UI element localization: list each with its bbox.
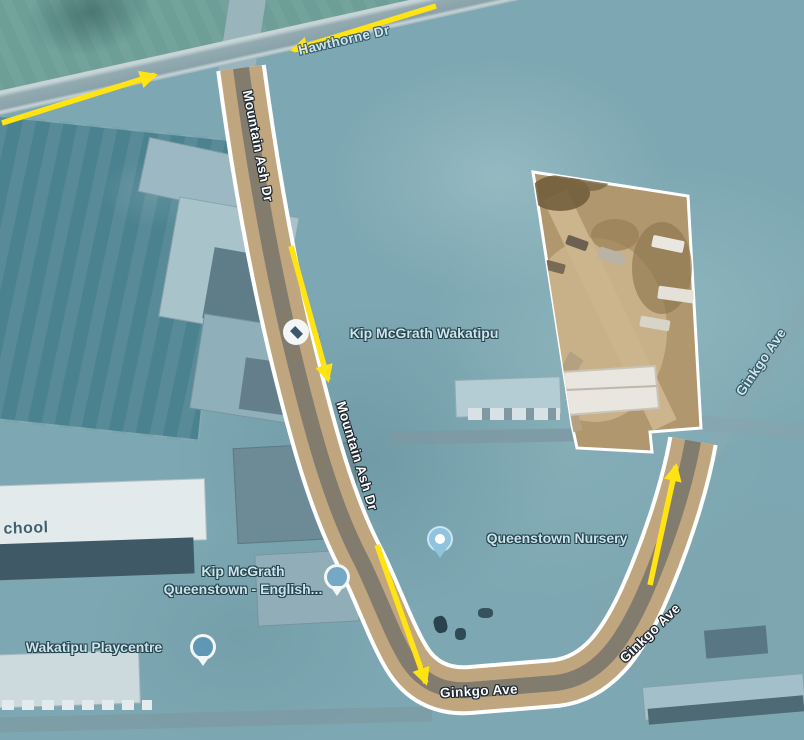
pin-tail xyxy=(433,548,447,558)
route-overlay xyxy=(0,0,804,740)
nursery-pin-icon[interactable] xyxy=(427,526,453,552)
pin-inner xyxy=(435,534,445,544)
poi-label-line: Queenstown - English... xyxy=(164,580,323,598)
poi-label-kip-mcgrath-wakatipu[interactable]: Kip McGrath Wakatipu xyxy=(350,324,499,342)
highlighted-property-parcel[interactable] xyxy=(523,167,701,452)
pin-inner xyxy=(327,567,347,587)
route-arrow-hawthorne-west-arrow xyxy=(2,75,155,123)
education-pin-icon[interactable] xyxy=(190,634,216,660)
pin-tail xyxy=(330,586,344,596)
poi-label-line: Wakatipu Playcentre xyxy=(26,638,162,656)
poi-label-line: Kip McGrath Wakatipu xyxy=(350,324,499,342)
place-pin-icon[interactable] xyxy=(324,564,350,590)
poi-label-wakatipu-playcentre[interactable]: Wakatipu Playcentre xyxy=(26,638,162,656)
map-canvas[interactable]: Hawthorne DrMountain Ash DrMountain Ash … xyxy=(0,0,804,740)
education-circle-icon[interactable] xyxy=(283,319,309,345)
route-arrow-hawthorne-east-arrow xyxy=(293,6,436,50)
poi-label-line: Queenstown Nursery xyxy=(487,529,628,547)
pin-inner xyxy=(193,637,213,657)
poi-label-kip-mcgrath-queenstown-english[interactable]: Kip McGrathQueenstown - English... xyxy=(164,562,323,598)
pin-tail xyxy=(196,656,210,666)
poi-label-queenstown-nursery[interactable]: Queenstown Nursery xyxy=(487,529,628,547)
poi-label-line: Kip McGrath xyxy=(164,562,323,580)
